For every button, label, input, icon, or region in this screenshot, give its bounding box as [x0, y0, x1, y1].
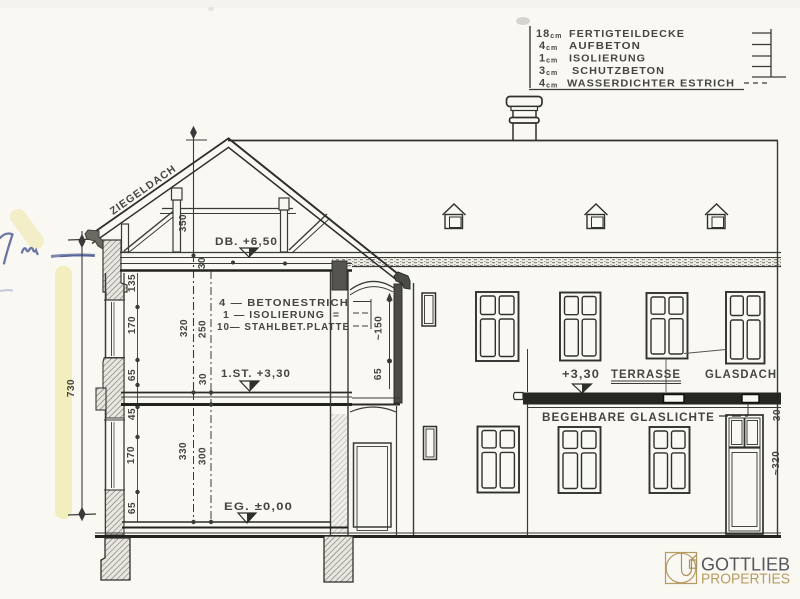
- svg-text:330: 330: [178, 442, 189, 460]
- svg-text:4 — BETONESTRICH: 4 — BETONESTRICH: [219, 298, 349, 309]
- svg-text:30: 30: [198, 373, 209, 385]
- svg-text:~150: ~150: [374, 316, 385, 341]
- svg-text:65: 65: [127, 369, 138, 381]
- svg-text:350: 350: [178, 214, 189, 232]
- svg-text:1 — ISOLIERUNG =: 1 — ISOLIERUNG =: [223, 310, 340, 321]
- svg-text:PROPERTIES: PROPERTIES: [701, 571, 790, 588]
- svg-text:BEGEHBARE GLASLICHTE: BEGEHBARE GLASLICHTE: [542, 412, 715, 424]
- svg-text:~320: ~320: [771, 451, 782, 476]
- svg-text:45: 45: [127, 408, 138, 420]
- svg-text:SCHUTZBETON: SCHUTZBETON: [572, 65, 665, 77]
- svg-text:TERRASSE: TERRASSE: [611, 369, 681, 381]
- svg-text:+3,30: +3,30: [562, 369, 600, 381]
- svg-text:1.ST. +3,30: 1.ST. +3,30: [221, 368, 291, 380]
- svg-text:320: 320: [179, 319, 190, 337]
- svg-text:ISOLIERUNG: ISOLIERUNG: [569, 53, 646, 65]
- svg-text:135: 135: [127, 274, 138, 292]
- svg-text:DB. +6,50: DB. +6,50: [215, 236, 278, 248]
- svg-text:30: 30: [772, 409, 783, 421]
- svg-text:EG. ±0,00: EG. ±0,00: [224, 501, 293, 513]
- svg-text:170: 170: [126, 446, 137, 464]
- svg-text:FERTIGTEILDECKE: FERTIGTEILDECKE: [569, 28, 685, 40]
- svg-text:300: 300: [198, 447, 209, 465]
- svg-text:170: 170: [127, 316, 138, 334]
- svg-text:250: 250: [198, 320, 209, 338]
- svg-text:65: 65: [373, 368, 384, 380]
- svg-text:GLASDACH: GLASDACH: [705, 369, 777, 381]
- svg-text:30: 30: [197, 257, 208, 269]
- svg-text:730: 730: [66, 379, 77, 397]
- svg-text:AUFBETON: AUFBETON: [569, 40, 641, 52]
- svg-text:65: 65: [127, 502, 138, 514]
- svg-text:WASSERDICHTER ESTRICH: WASSERDICHTER ESTRICH: [567, 78, 735, 90]
